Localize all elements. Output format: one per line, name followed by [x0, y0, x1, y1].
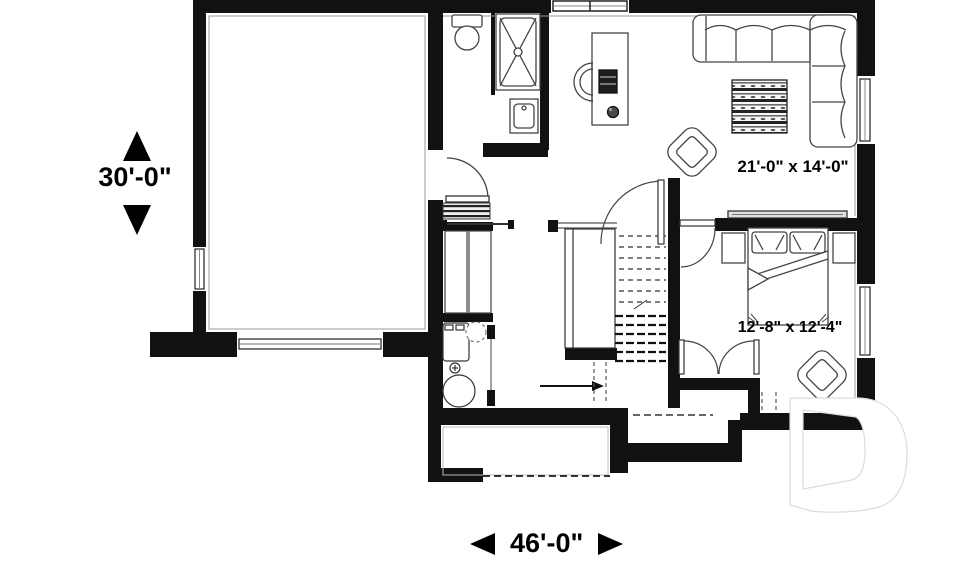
up-arrow-icon: [123, 131, 151, 161]
garage-door: [237, 332, 383, 357]
floor-drain-icon: [450, 363, 460, 373]
desk-icon: [574, 33, 628, 125]
width-dimension: 46'-0": [470, 528, 623, 559]
plant-icon: [608, 107, 619, 118]
shower-icon: [496, 14, 540, 90]
tv-console-icon: [728, 211, 847, 218]
stair-core-closet: [558, 223, 617, 348]
wardrobe-doors-icon: [679, 340, 759, 374]
storage-closet: [445, 231, 491, 313]
family-room-size-label: 21'-0" x 14'-0": [708, 157, 878, 177]
computer-icon: [599, 70, 617, 93]
water-heater-icon: [443, 375, 475, 407]
height-dimension-label: 30'-0": [85, 162, 185, 193]
future-fixture-icon: [466, 322, 486, 342]
bed-icon: [748, 228, 829, 325]
floor-plan-page: 30'-0" 46'-0" 21'-0" x 14'-0" 12'-8" x 1…: [0, 0, 960, 569]
washer-icon: [443, 323, 469, 361]
window-garage-left: [193, 247, 206, 291]
bedroom-furniture: [722, 228, 855, 403]
nightstand-icon: [722, 233, 745, 263]
armchair-icon: [794, 347, 851, 404]
right-arrow-icon: [598, 533, 623, 555]
family-room-furniture: [574, 15, 857, 218]
ottoman-icon: [732, 80, 787, 133]
bathroom-door-swing: [446, 158, 489, 202]
window-family-room: [857, 76, 875, 144]
pillow: [752, 232, 787, 253]
toilet-icon: [452, 15, 482, 50]
bedroom-size-label: 12'-8" x 12'-4": [710, 319, 870, 337]
left-arrow-icon: [470, 533, 495, 555]
bedroom-door-swing: [680, 220, 715, 267]
laundry-mechanical: [443, 322, 491, 407]
down-arrow-icon: [123, 205, 151, 235]
width-dimension-label: 46'-0": [510, 528, 583, 559]
pillow: [790, 232, 825, 253]
window-top: [551, 0, 629, 13]
nightstand-icon: [833, 233, 855, 263]
floor-plan-drawing: [0, 0, 960, 569]
vanity-sink-icon: [510, 99, 538, 133]
porch-recess: [630, 411, 716, 420]
